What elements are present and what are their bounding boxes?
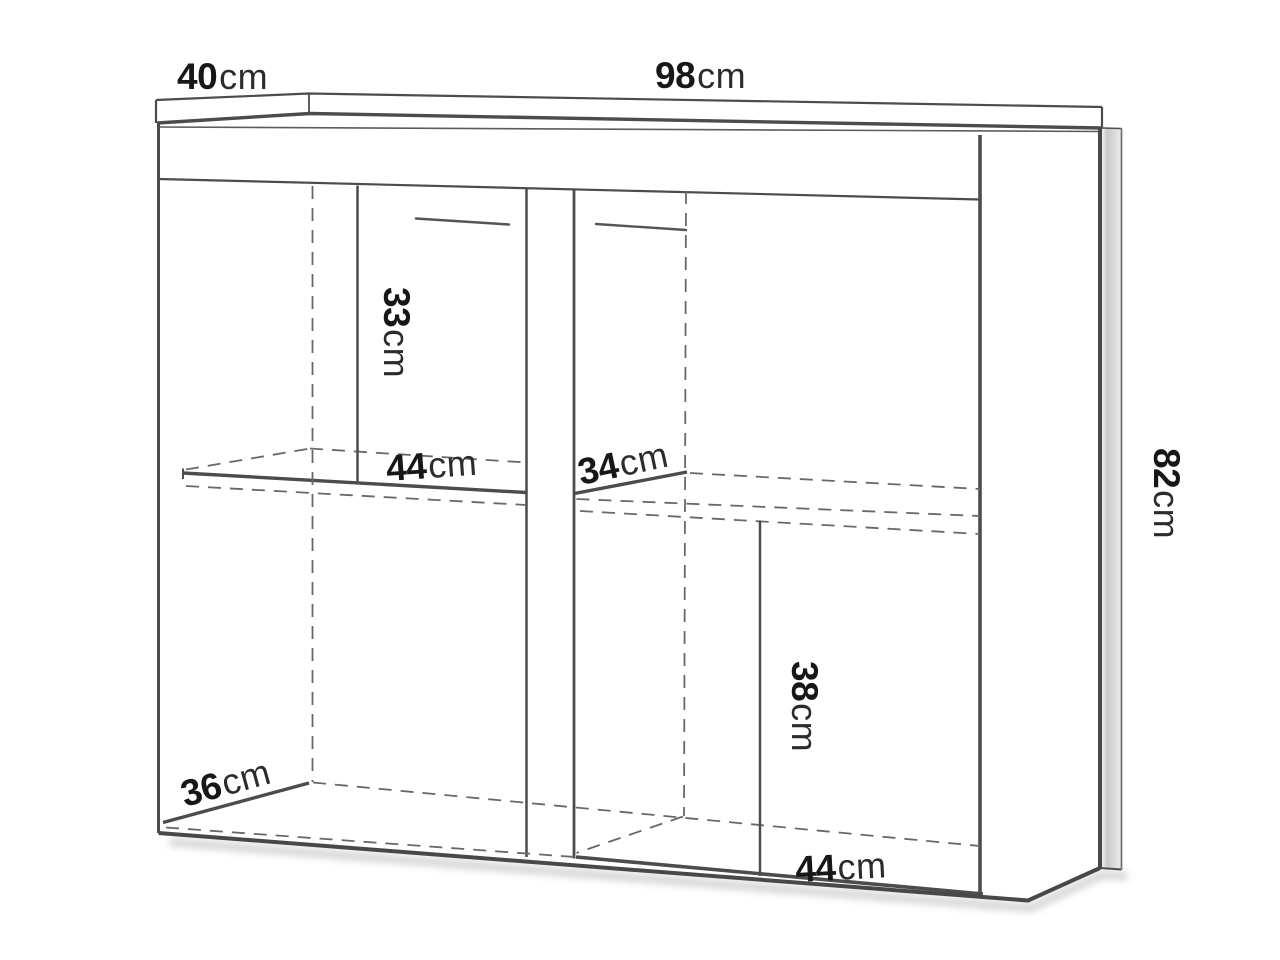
front-face-top-edge [158,127,1098,132]
label-bottom-width-44cm: 44cm [794,844,887,890]
left-door-streak [416,219,509,225]
side-panel-face [1100,129,1122,870]
label-38-unit: cm [784,703,825,752]
label-33-number: 33 [376,287,417,327]
label-38-number: 38 [784,661,825,701]
right-shelf-hidden-bottom [580,511,980,534]
label-82-number: 82 [1146,448,1187,488]
top-panel-outline [156,94,1102,132]
hidden-back-center-vertical [684,191,686,816]
right-door-streak [596,224,686,230]
interior-structure-lines [527,189,575,859]
label-34-number: 34 [574,444,623,493]
label-top-depth-40cm: 40cm [177,56,268,97]
bottom-hidden-front-left [166,828,575,858]
label-82-unit: cm [1146,490,1187,539]
right-shelf-hidden-back [690,473,980,489]
label-98-number: 98 [655,55,695,96]
left-shelf-hidden-side [186,449,310,470]
label-lower-height-38cm: 38cm [784,661,825,752]
label-overall-height-82cm: 82cm [1146,448,1187,539]
bottom-hidden-back [313,783,980,847]
label-40-unit: cm [219,56,268,97]
label-98-unit: cm [697,55,746,96]
label-left-shelf-44cm: 44cm [385,442,479,489]
label-44-left-number: 44 [385,445,429,489]
top-back-edge [156,94,1102,108]
right-shelf-hidden-front [577,499,981,516]
diagram-canvas: 40cm 98cm 33cm 44cm 34cm 82cm 38cm 36cm … [0,0,1280,960]
label-top-width-98cm: 98cm [655,55,746,96]
label-40-number: 40 [177,56,217,97]
side-panel-top-edge [1102,128,1122,129]
furniture-dimension-diagram: 40cm 98cm 33cm 44cm 34cm 82cm 38cm 36cm … [0,0,1280,960]
side-panel [1100,128,1122,870]
label-right-shelf-34cm: 34cm [574,434,672,493]
interior-top-edge [159,179,981,200]
label-44-left-unit: cm [427,442,479,486]
label-upper-height-33cm: 33cm [376,287,417,378]
label-33-unit: cm [376,329,417,378]
top-front-edge [157,114,1102,129]
bottom-hidden-center-depth [577,817,684,854]
highlight-streaks [416,219,686,231]
label-44-bottom-number: 44 [794,847,837,890]
label-44-bottom-unit: cm [836,844,887,888]
